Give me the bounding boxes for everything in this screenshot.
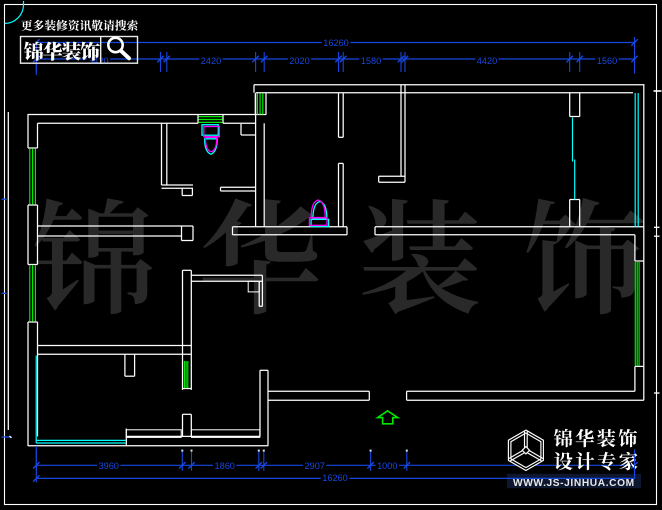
- svg-text:WWW.JS-JINHUA.COM: WWW.JS-JINHUA.COM: [513, 478, 635, 489]
- svg-text:3960: 3960: [98, 461, 118, 471]
- svg-text:2020: 2020: [289, 56, 309, 66]
- svg-text:16260: 16260: [322, 473, 348, 483]
- svg-text:3420: 3420: [88, 56, 108, 66]
- svg-text:2907: 2907: [304, 461, 324, 471]
- svg-text:4420: 4420: [477, 56, 497, 66]
- svg-text:1000: 1000: [377, 461, 397, 471]
- svg-text:1560: 1560: [597, 56, 617, 66]
- svg-text:16260: 16260: [323, 38, 349, 48]
- svg-text:1580: 1580: [361, 56, 381, 66]
- svg-text:2420: 2420: [201, 56, 221, 66]
- svg-text:1860: 1860: [214, 461, 234, 471]
